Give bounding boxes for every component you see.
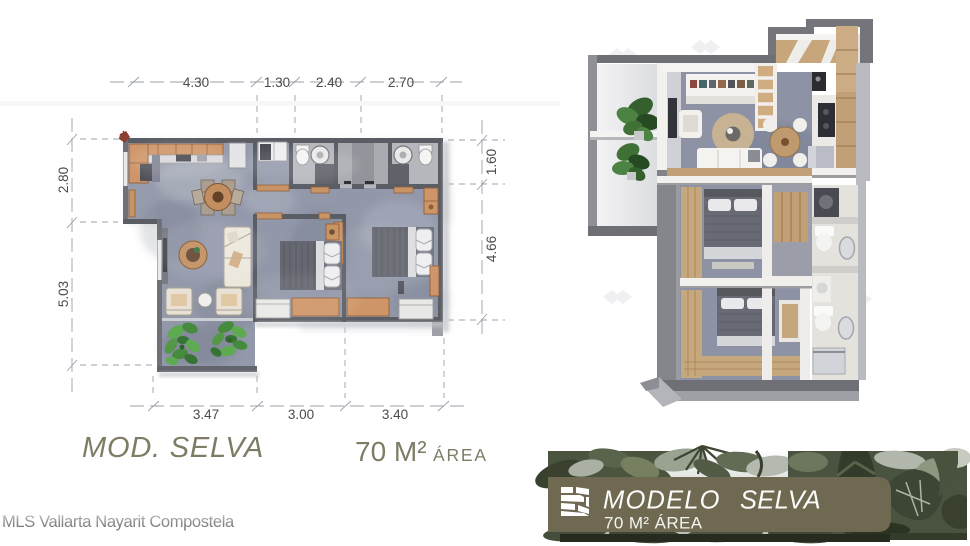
svg-text:5.03: 5.03 [56,281,71,307]
svg-text:70 M² ÁREA: 70 M² ÁREA [604,514,703,533]
svg-text:70 M²: 70 M² [355,436,427,467]
svg-text:1.60: 1.60 [484,149,499,175]
svg-text:4.30: 4.30 [183,75,209,90]
svg-text:SELVA: SELVA [740,487,821,515]
svg-text:MODELO: MODELO [603,487,721,515]
svg-text:3.00: 3.00 [288,407,314,422]
svg-text:2.80: 2.80 [56,167,71,193]
svg-text:1.30: 1.30 [264,75,290,90]
svg-text:4.66: 4.66 [484,236,499,262]
svg-text:MOD. SELVA: MOD. SELVA [82,432,264,464]
svg-text:3.47: 3.47 [193,407,219,422]
svg-text:2.40: 2.40 [316,75,342,90]
svg-text:MLS Vallarta Nayarit Compostel: MLS Vallarta Nayarit Compostela [2,513,235,531]
svg-text:ÁREA: ÁREA [433,445,488,465]
svg-text:3.40: 3.40 [382,407,408,422]
svg-text:2.70: 2.70 [388,75,414,90]
